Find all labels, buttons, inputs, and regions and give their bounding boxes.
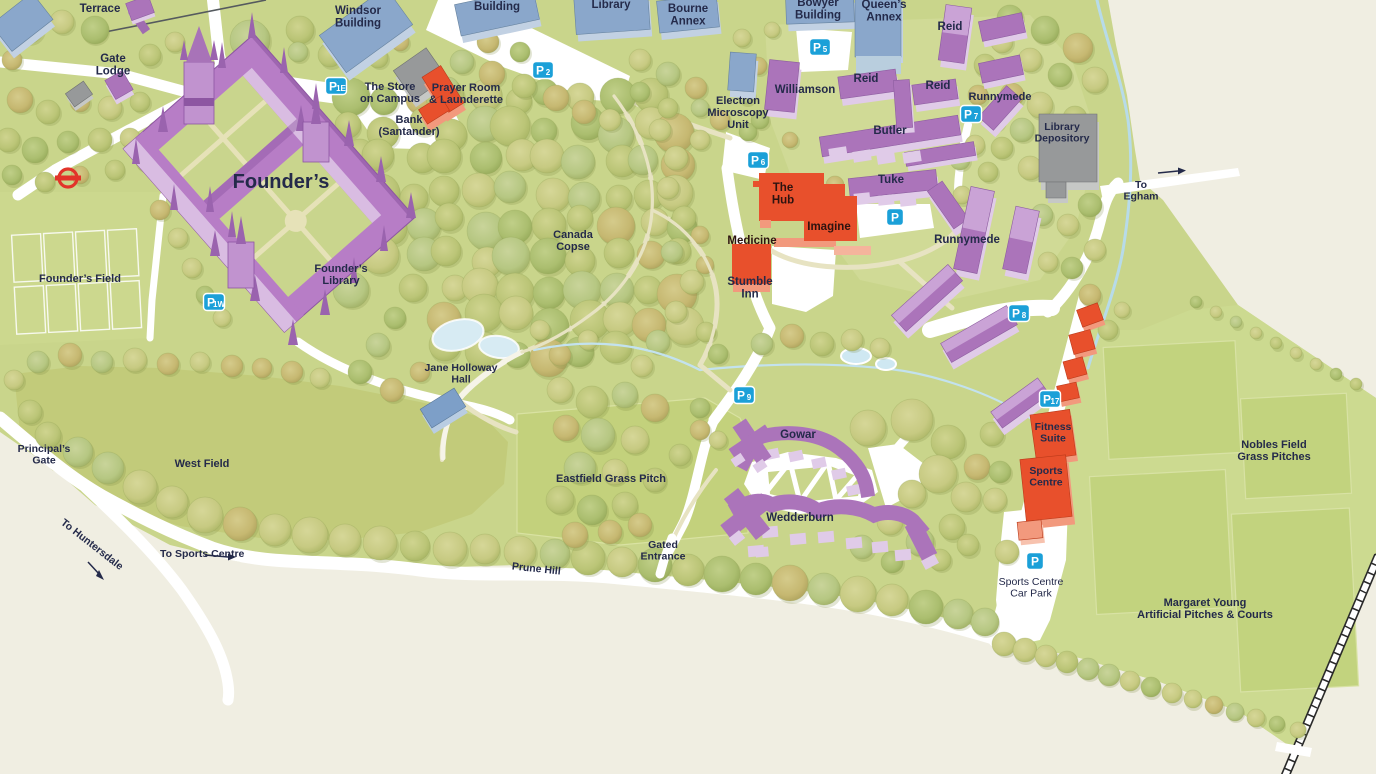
svg-text:1W: 1W — [213, 300, 225, 309]
svg-text:P: P — [813, 41, 821, 55]
svg-text:TheHub: TheHub — [772, 182, 794, 206]
svg-text:BourneAnnex: BourneAnnex — [668, 3, 708, 27]
svg-text:Imagine: Imagine — [807, 221, 850, 233]
svg-text:9: 9 — [747, 393, 752, 402]
svg-text:The Storeon Campus: The Storeon Campus — [360, 81, 420, 105]
svg-text:GateLodge: GateLodge — [96, 53, 131, 77]
svg-text:Williamson: Williamson — [775, 84, 836, 96]
svg-text:Library: Library — [592, 0, 632, 11]
svg-text:P: P — [891, 211, 899, 225]
svg-text:Founder’sLibrary: Founder’sLibrary — [314, 263, 367, 287]
svg-text:Tuke: Tuke — [878, 174, 904, 186]
svg-text:Runnymede: Runnymede — [969, 91, 1032, 103]
svg-text:6: 6 — [761, 158, 766, 167]
svg-text:BowyerBuilding: BowyerBuilding — [795, 0, 841, 21]
svg-text:Terrace: Terrace — [80, 3, 121, 15]
svg-text:Wedderburn: Wedderburn — [766, 512, 834, 524]
svg-text:Runnymede: Runnymede — [934, 234, 1000, 246]
svg-text:Medicine: Medicine — [727, 235, 776, 247]
svg-text:Gowar: Gowar — [780, 429, 816, 441]
svg-text:P: P — [536, 64, 544, 78]
svg-text:WindsorBuilding: WindsorBuilding — [335, 5, 381, 29]
svg-text:P: P — [737, 389, 745, 403]
svg-text:Reid: Reid — [926, 80, 951, 92]
svg-text:Founder’s Field: Founder’s Field — [39, 273, 121, 285]
svg-text:8: 8 — [1022, 311, 1027, 320]
svg-text:Butler: Butler — [873, 125, 907, 137]
svg-text:Prayer Room& Launderette: Prayer Room& Launderette — [429, 82, 503, 106]
svg-text:P: P — [751, 154, 759, 168]
svg-text:Founder’s: Founder’s — [233, 171, 330, 193]
svg-text:7: 7 — [974, 112, 979, 121]
svg-text:P: P — [1012, 307, 1020, 321]
svg-text:Building: Building — [474, 1, 520, 13]
svg-text:SportsCentre: SportsCentre — [1029, 465, 1062, 488]
svg-text:Nobles FieldGrass Pitches: Nobles FieldGrass Pitches — [1237, 439, 1310, 463]
svg-text:P: P — [1031, 555, 1039, 569]
svg-text:CanadaCopse: CanadaCopse — [553, 229, 594, 253]
svg-text:1E: 1E — [336, 84, 346, 93]
svg-text:Queen’sAnnex: Queen’sAnnex — [862, 0, 907, 23]
svg-text:17: 17 — [1051, 397, 1060, 406]
svg-text:Reid: Reid — [854, 73, 879, 85]
svg-text:5: 5 — [823, 45, 828, 54]
svg-text:Eastfield Grass Pitch: Eastfield Grass Pitch — [556, 473, 666, 485]
svg-text:Reid: Reid — [938, 21, 963, 33]
svg-text:2: 2 — [546, 68, 551, 77]
svg-text:West Field: West Field — [175, 458, 230, 470]
svg-text:P: P — [964, 108, 972, 122]
